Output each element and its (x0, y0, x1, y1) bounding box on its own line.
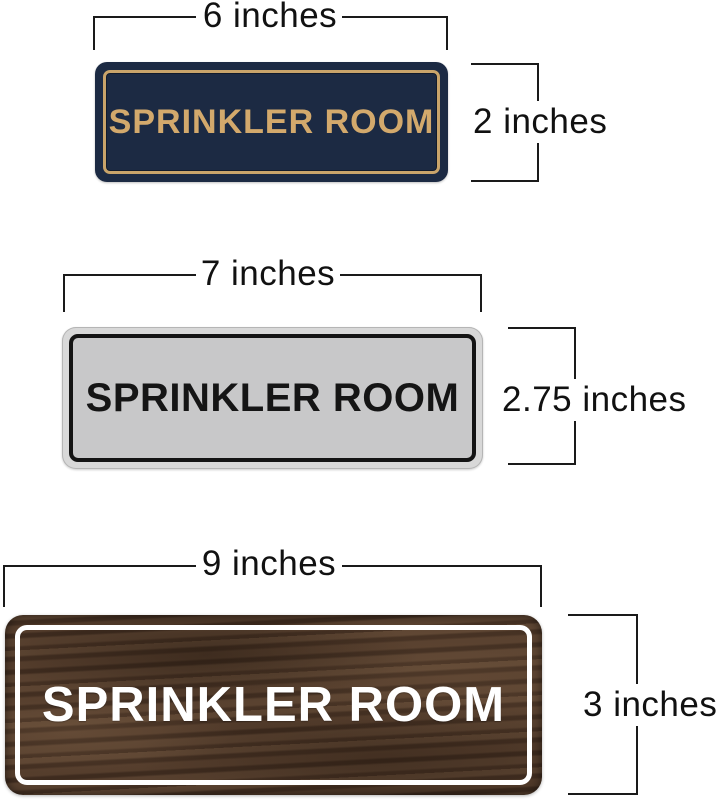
sign-navy-text: SPRINKLER ROOM (109, 103, 435, 142)
dimension-end-tick-left (63, 274, 65, 312)
height-dimension-label: 3 inches (579, 684, 721, 726)
width-dimension-label: 7 inches (158, 255, 378, 293)
dimension-end-tick-top (471, 63, 539, 65)
sign-silver: SPRINKLER ROOM (62, 327, 483, 469)
width-dimension-label: 6 inches (160, 0, 380, 35)
sign-walnut-text: SPRINKLER ROOM (42, 677, 505, 733)
height-dimension-label: 2.75 inches (498, 379, 691, 421)
height-dimension-label: 2 inches (469, 101, 611, 143)
dimension-end-tick-right (540, 565, 542, 607)
dimension-end-tick-right (480, 274, 482, 312)
dimension-end-tick-bottom (508, 463, 576, 465)
dimension-end-tick-top (568, 614, 638, 616)
width-dimension-label: 9 inches (159, 545, 379, 583)
dimension-end-tick-right (446, 16, 448, 50)
sign-walnut: SPRINKLER ROOM (5, 615, 542, 795)
dimension-end-tick-bottom (568, 793, 638, 795)
dimension-end-tick-bottom (471, 180, 539, 182)
dimension-end-tick-left (3, 565, 5, 607)
sign-size-comparison-image: 6 inches SPRINKLER ROOM 2 inches 7 inche… (0, 0, 722, 805)
sign-navy: SPRINKLER ROOM (95, 62, 448, 182)
dimension-end-tick-left (93, 16, 95, 50)
sign-silver-text: SPRINKLER ROOM (86, 376, 460, 421)
dimension-end-tick-top (508, 327, 576, 329)
